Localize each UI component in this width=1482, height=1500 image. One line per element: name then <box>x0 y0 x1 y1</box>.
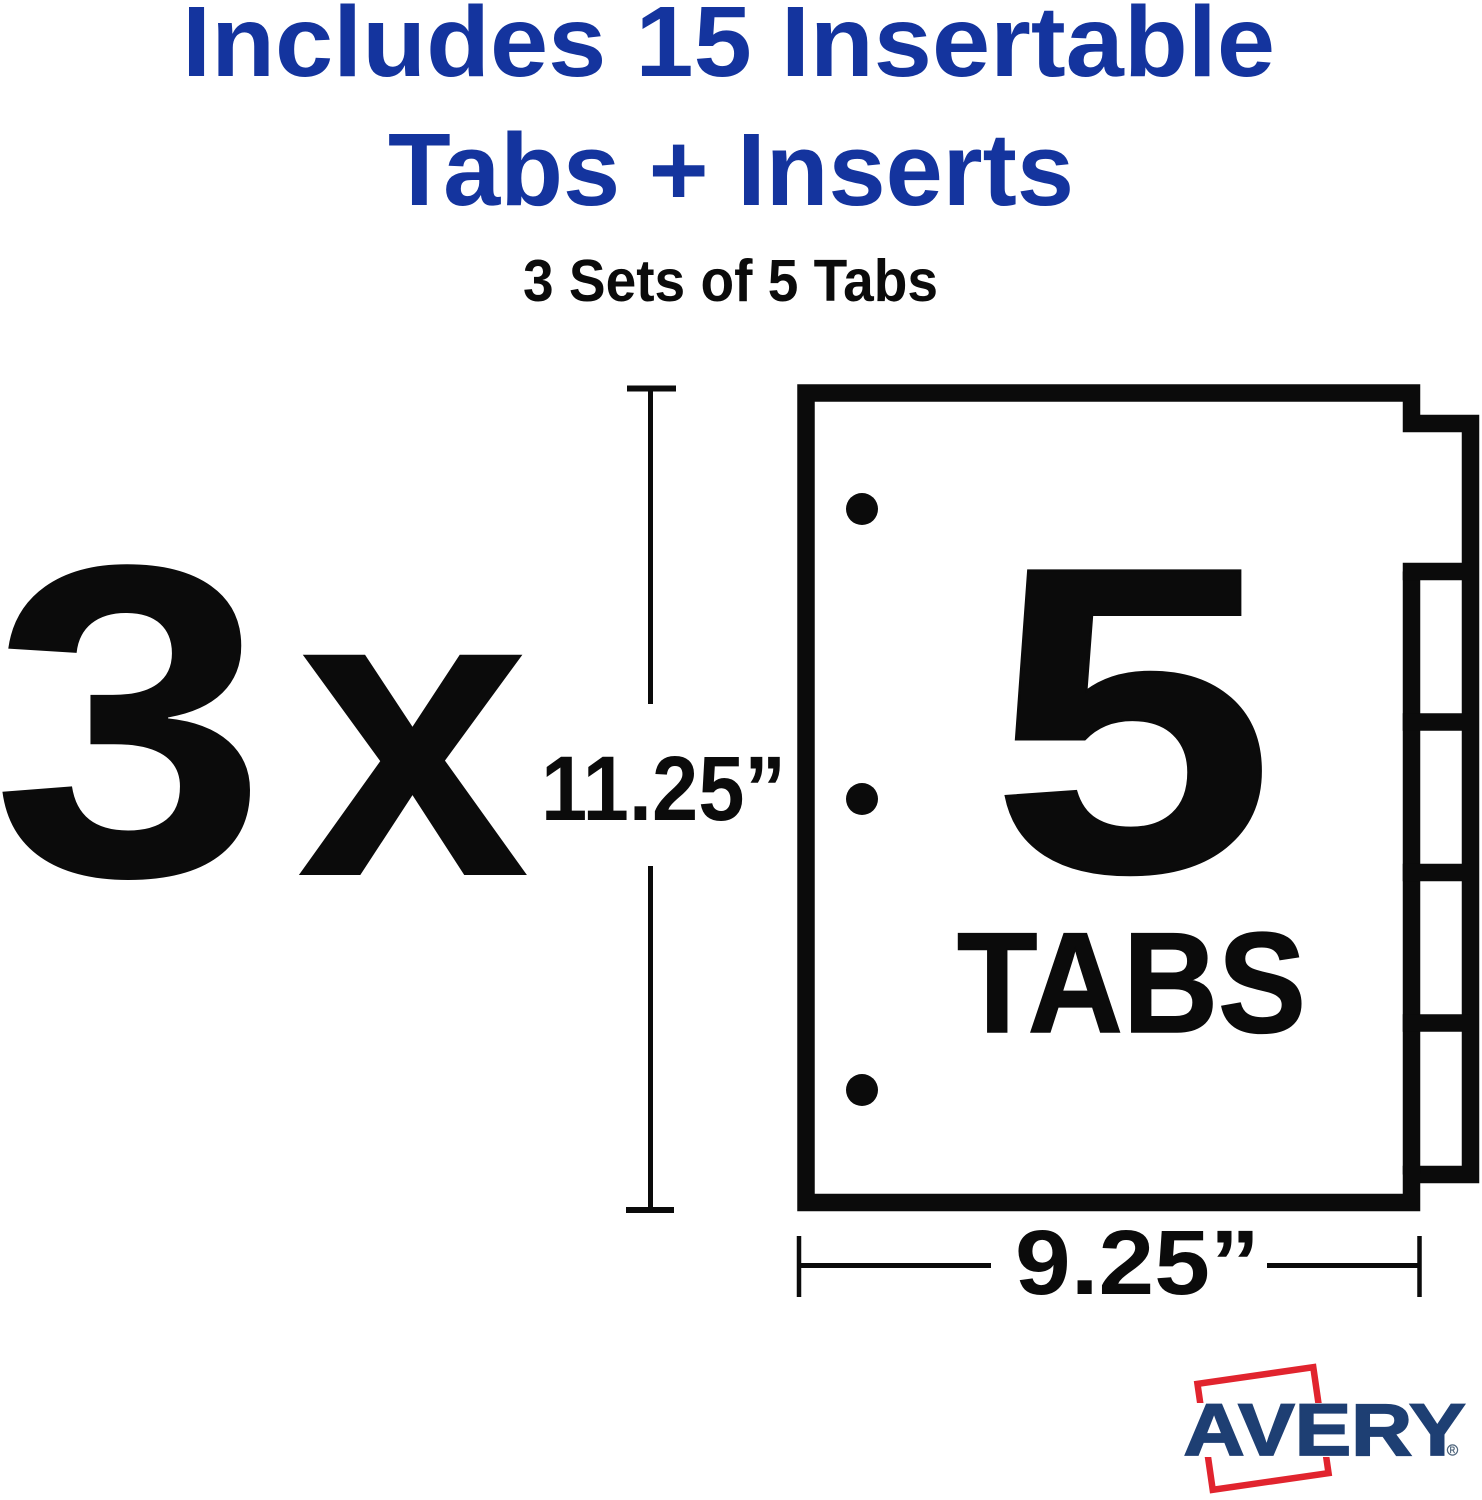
svg-text:9.25”: 9.25” <box>1015 1212 1260 1314</box>
svg-text:Tabs + Inserts: Tabs + Inserts <box>388 112 1074 227</box>
svg-text:3: 3 <box>0 473 268 970</box>
svg-text:3 Sets of 5 Tabs: 3 Sets of 5 Tabs <box>523 248 938 314</box>
svg-text:5: 5 <box>990 475 1275 964</box>
svg-text:11.25”: 11.25” <box>541 738 786 840</box>
svg-text:TABS: TABS <box>957 904 1306 1063</box>
svg-text:AVERY: AVERY <box>1184 1390 1466 1471</box>
svg-text:x: x <box>296 499 533 964</box>
svg-text:Includes 15 Insertable: Includes 15 Insertable <box>182 0 1275 98</box>
